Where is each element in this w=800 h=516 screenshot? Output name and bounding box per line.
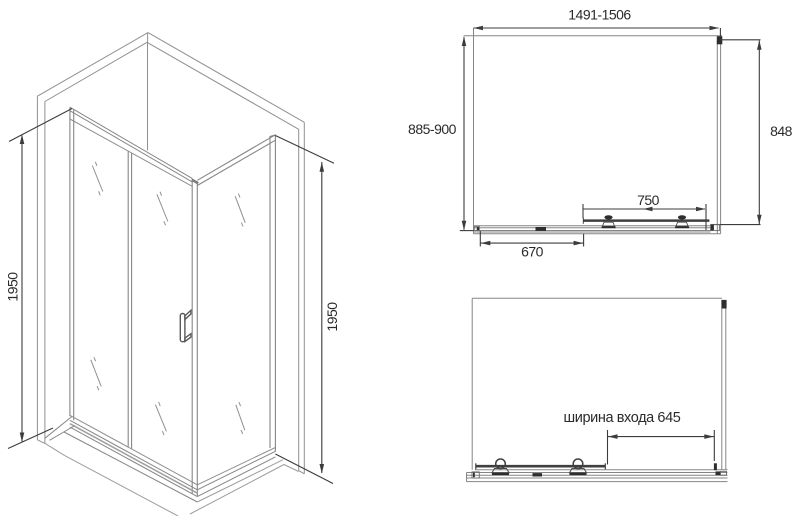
svg-text:670: 670 [521, 244, 544, 260]
svg-text:1491-1506: 1491-1506 [568, 7, 631, 23]
svg-text:1950: 1950 [5, 272, 21, 302]
svg-text:1950: 1950 [324, 302, 340, 332]
svg-text:848: 848 [770, 123, 793, 139]
svg-text:885-900: 885-900 [408, 121, 457, 137]
svg-text:ширина входа 645: ширина входа 645 [564, 410, 681, 426]
svg-text:750: 750 [637, 192, 660, 208]
